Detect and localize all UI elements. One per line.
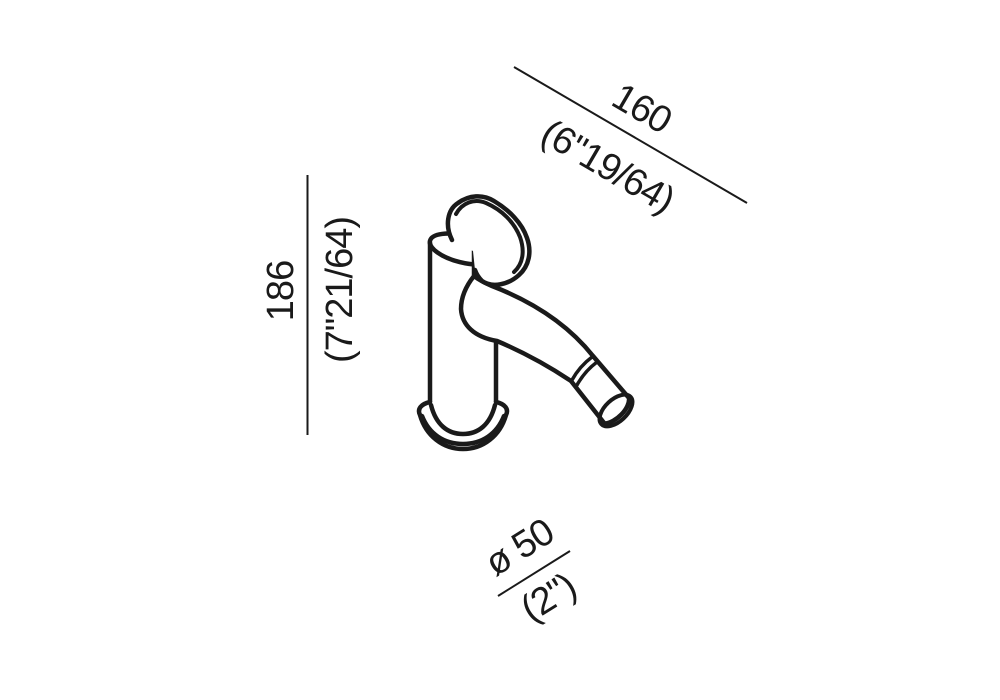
dimension-annotations: 160 (6"19/64) 186 (7"21/64) ø 50 (2") xyxy=(260,67,747,630)
height-metric-label: 186 xyxy=(260,261,302,321)
base-flange xyxy=(419,402,507,449)
faucet-figure xyxy=(419,196,638,449)
spout-reach-metric-label: 160 xyxy=(605,75,678,142)
dimension-height: 186 (7"21/64) xyxy=(260,175,361,435)
drawing-canvas: 160 (6"19/64) 186 (7"21/64) ø 50 (2") xyxy=(0,0,1000,700)
height-imperial-label: (7"21/64) xyxy=(319,217,361,363)
dimension-spout-reach: 160 (6"19/64) xyxy=(514,67,747,222)
faucet-technical-drawing: 160 (6"19/64) 186 (7"21/64) ø 50 (2") xyxy=(0,0,1000,700)
dimension-base-diameter: ø 50 (2") xyxy=(478,511,584,631)
base-diameter-imperial-label: (2") xyxy=(514,565,584,630)
